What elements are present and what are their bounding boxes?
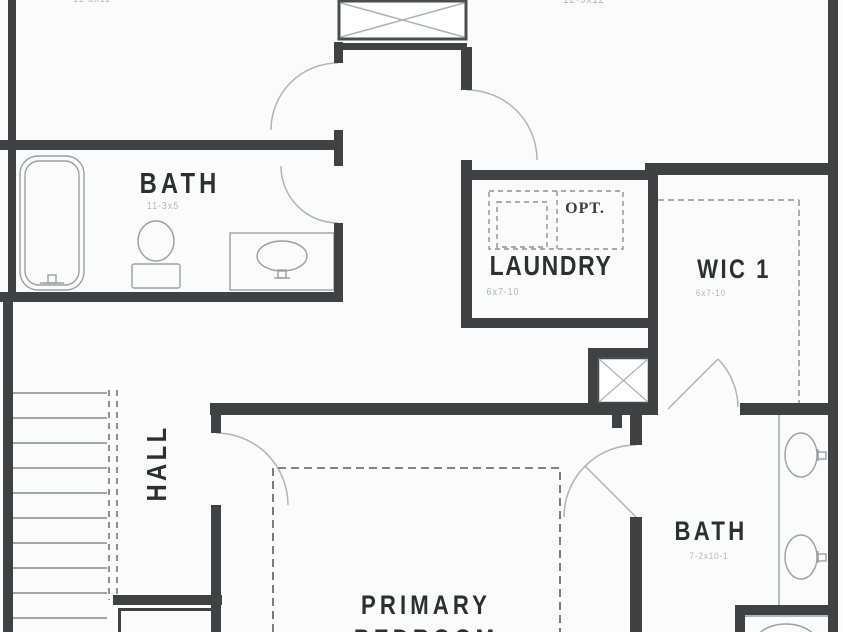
door-arc-wic1 (718, 359, 738, 407)
bedroom-tl-dimension: 11-3x11 (73, 0, 110, 5)
room-label-laundry: LAUNDRY (490, 250, 613, 282)
floor-plan: 11-3x11 12-9x12 BATH 11-3x5 OPT. LAUNDRY… (0, 0, 843, 632)
room-label-bath2: BATH (675, 516, 748, 547)
wall-segment (648, 172, 658, 413)
wall-segment (338, 43, 467, 50)
wall-segment (588, 348, 597, 405)
wall-segment (461, 160, 472, 328)
door-arc-bedroom-left (271, 63, 338, 130)
door-arc-bath1 (281, 166, 338, 223)
label-opt: OPT. (565, 200, 605, 218)
bedroom-tr-dimension: 12-9x12 (563, 0, 605, 6)
room-label-bath1: BATH (140, 168, 221, 201)
wall-segment (461, 318, 651, 328)
wall-segment (735, 605, 838, 615)
wall-segment (113, 595, 222, 605)
wall-segment (630, 517, 642, 632)
room-dimension-wic1: 6x7-10 (696, 288, 726, 298)
wall-segment (211, 415, 221, 433)
wall-segment (828, 0, 838, 632)
stair-landing-walls (118, 608, 216, 632)
bathtub-fixture (20, 156, 84, 290)
stair-railing (109, 390, 117, 600)
wall-segment (334, 150, 343, 166)
wall-segment (334, 130, 343, 150)
vanity-sink-fixture (230, 233, 334, 290)
toilet-fixture (132, 221, 180, 288)
wall-segment (0, 140, 343, 150)
room-dimension-laundry: 6x7-10 (487, 287, 520, 298)
door-arc-primary-left (216, 433, 288, 505)
wall-segment (0, 292, 343, 302)
room-label-hall: HALL (141, 424, 173, 501)
wall-segment (3, 302, 13, 632)
room-dimension-bath1: 11-3x5 (147, 201, 179, 212)
wall-segment (334, 223, 343, 302)
wall-segment (8, 0, 16, 302)
chase-x-box-mid (598, 358, 649, 403)
wall-segment (588, 348, 655, 357)
wall-segment (630, 415, 642, 445)
chase-x-box-top (339, 1, 466, 39)
wall-segment (612, 415, 622, 428)
double-vanity-fixture (779, 415, 826, 605)
room-label-primary-line1: PRIMARY (361, 590, 491, 621)
door-leaf-primary-right (585, 466, 636, 517)
wall-segment (740, 403, 838, 415)
door-leaf-wic1 (668, 359, 718, 409)
wall-segment (735, 605, 745, 632)
stairs (13, 393, 107, 618)
wall-segment (210, 403, 658, 415)
wall-segment (461, 47, 472, 90)
room-dimension-bath2: 7-2x10-1 (689, 551, 728, 561)
room-label-wic1: WIC 1 (697, 254, 771, 285)
room-label-primary-line2: BEDROOM (354, 624, 498, 632)
door-arc-bedroom-right (467, 90, 537, 160)
bathtub2-fixture (742, 616, 832, 632)
wall-segment (645, 163, 838, 175)
wall-segment (461, 170, 651, 180)
